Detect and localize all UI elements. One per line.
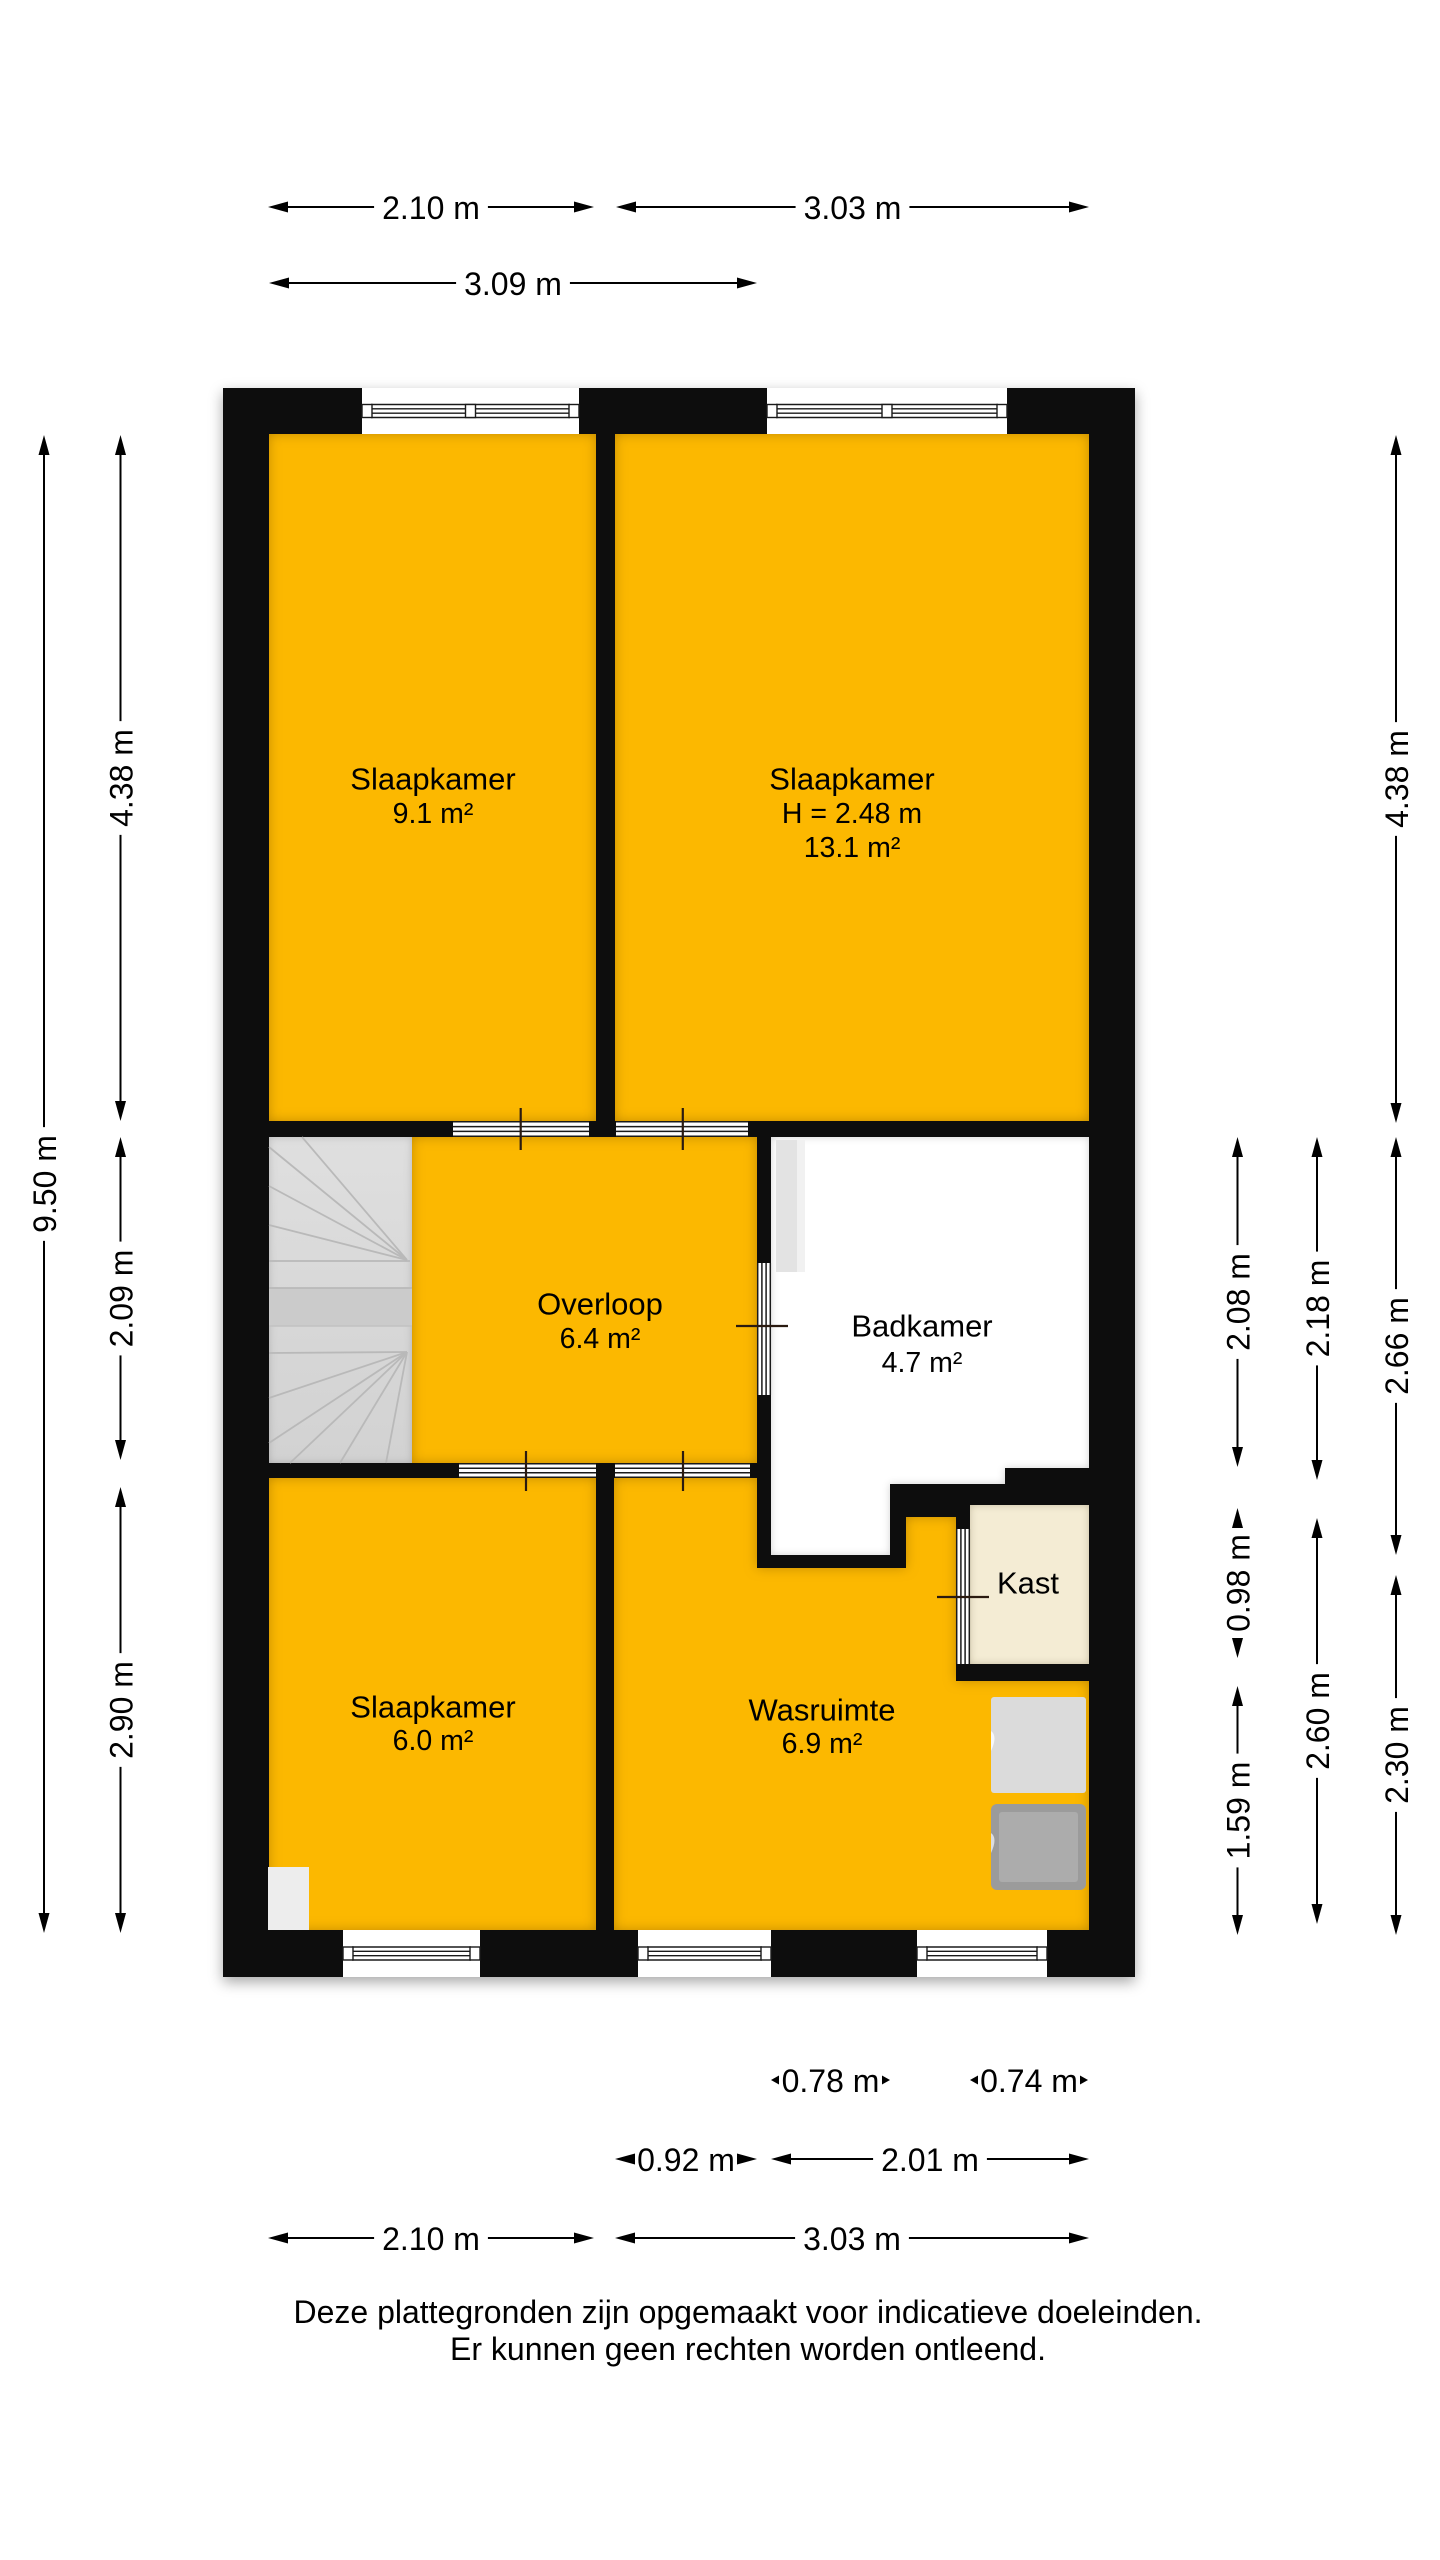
svg-text:Slaapkamer: Slaapkamer: [350, 1690, 515, 1725]
svg-text:4.7 m²: 4.7 m²: [882, 1347, 963, 1379]
svg-text:Wasruimte: Wasruimte: [749, 1693, 896, 1728]
svg-text:6.4 m²: 6.4 m²: [560, 1323, 641, 1355]
svg-text:2.08 m: 2.08 m: [1221, 1253, 1257, 1351]
svg-text:Overloop: Overloop: [537, 1287, 663, 1322]
svg-text:2.66 m: 2.66 m: [1379, 1297, 1415, 1395]
svg-text:3.03 m: 3.03 m: [803, 2221, 901, 2257]
svg-text:Badkamer: Badkamer: [851, 1309, 992, 1344]
svg-text:1.59 m: 1.59 m: [1221, 1762, 1257, 1860]
svg-text:13.1 m²: 13.1 m²: [804, 832, 901, 864]
svg-text:H = 2.48 m: H = 2.48 m: [782, 798, 922, 830]
svg-text:Er kunnen geen rechten worden: Er kunnen geen rechten worden ontleend.: [450, 2331, 1046, 2367]
svg-text:2.10 m: 2.10 m: [382, 2221, 480, 2257]
svg-text:3.03 m: 3.03 m: [804, 190, 902, 226]
svg-text:Slaapkamer: Slaapkamer: [350, 762, 515, 797]
svg-text:Deze plattegronden zijn opgema: Deze plattegronden zijn opgemaakt voor i…: [293, 2294, 1202, 2330]
svg-text:4.38 m: 4.38 m: [104, 729, 140, 827]
svg-text:2.18 m: 2.18 m: [1300, 1260, 1336, 1358]
svg-text:2.90 m: 2.90 m: [104, 1661, 140, 1759]
svg-text:0.92 m: 0.92 m: [637, 2142, 735, 2178]
svg-text:9.1 m²: 9.1 m²: [393, 798, 474, 830]
svg-text:6.9 m²: 6.9 m²: [782, 1728, 863, 1760]
svg-text:2.09 m: 2.09 m: [104, 1250, 140, 1348]
svg-text:2.60 m: 2.60 m: [1300, 1672, 1336, 1770]
svg-text:2.01 m: 2.01 m: [881, 2142, 979, 2178]
svg-text:4.38 m: 4.38 m: [1379, 730, 1415, 828]
svg-text:6.0 m²: 6.0 m²: [393, 1725, 474, 1757]
svg-text:2.10 m: 2.10 m: [382, 190, 480, 226]
svg-text:Slaapkamer: Slaapkamer: [769, 762, 934, 797]
svg-text:0.78 m: 0.78 m: [782, 2063, 880, 2099]
svg-text:2.30 m: 2.30 m: [1379, 1706, 1415, 1804]
svg-text:3.09 m: 3.09 m: [464, 266, 562, 302]
svg-text:Kast: Kast: [997, 1566, 1059, 1601]
svg-text:9.50 m: 9.50 m: [27, 1135, 63, 1233]
svg-text:0.98 m: 0.98 m: [1221, 1534, 1257, 1632]
svg-text:0.74 m: 0.74 m: [980, 2063, 1078, 2099]
